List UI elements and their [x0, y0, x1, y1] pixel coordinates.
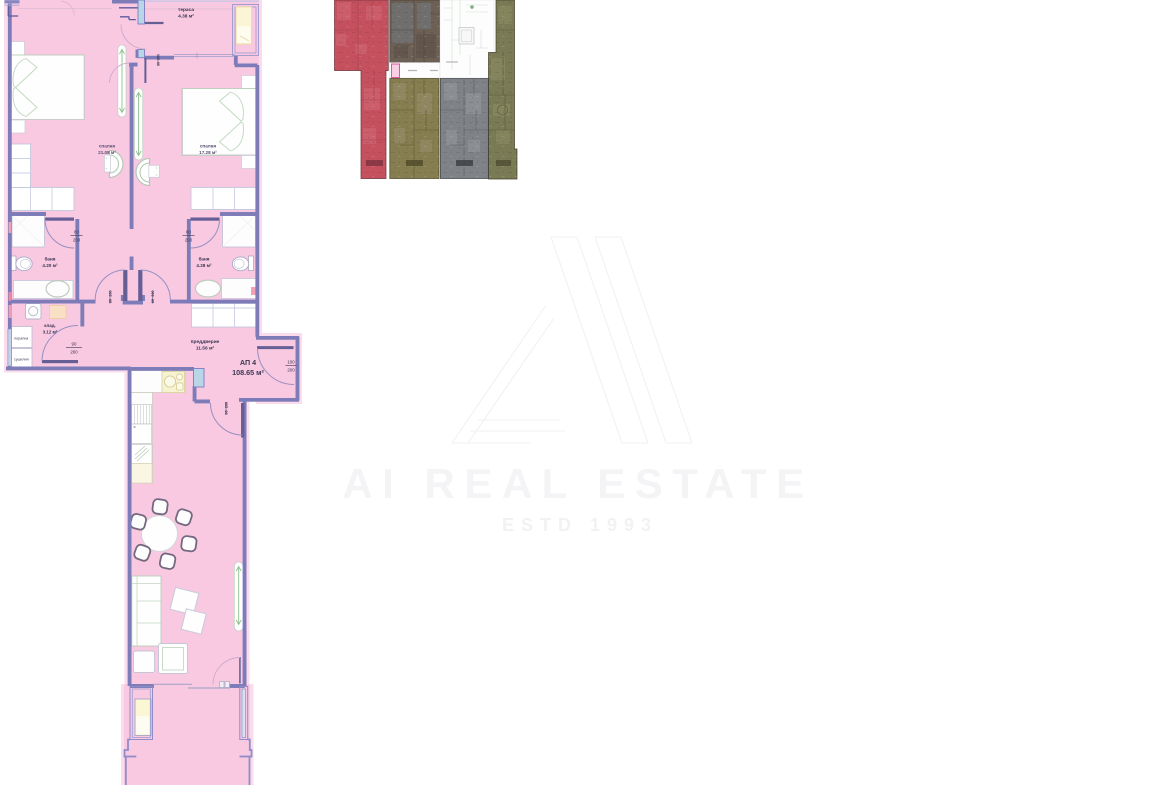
svg-text:108.65 м²: 108.65 м² — [232, 368, 264, 377]
svg-text:21.08 м²: 21.08 м² — [98, 150, 116, 155]
svg-text:200: 200 — [151, 290, 155, 296]
svg-text:80: 80 — [74, 230, 79, 235]
svg-text:баня: баня — [45, 256, 56, 262]
svg-text:АП 4: АП 4 — [240, 358, 256, 367]
svg-text:4.28 м²: 4.28 м² — [196, 263, 212, 268]
svg-text:преддверие: преддверие — [191, 340, 220, 345]
svg-text:перална: перална — [14, 337, 28, 341]
svg-text:200: 200 — [73, 238, 81, 243]
svg-text:4.20 м²: 4.20 м² — [42, 263, 58, 268]
svg-text:80: 80 — [109, 299, 113, 303]
svg-text:200: 200 — [185, 238, 193, 243]
svg-text:80: 80 — [151, 299, 155, 303]
svg-text:90: 90 — [157, 62, 161, 66]
svg-text:200: 200 — [225, 402, 229, 408]
svg-text:спалня: спалня — [200, 144, 217, 149]
svg-text:4.38 м²: 4.38 м² — [178, 14, 194, 20]
svg-text:100: 100 — [287, 360, 295, 365]
svg-text:200: 200 — [287, 368, 295, 373]
svg-text:ESTD 1993: ESTD 1993 — [502, 515, 658, 535]
svg-text:клад.: клад. — [44, 323, 56, 328]
svg-text:3.12 м²: 3.12 м² — [43, 330, 58, 335]
svg-text:спалня: спалня — [99, 144, 116, 149]
svg-text:80: 80 — [186, 230, 191, 235]
svg-text:17.28 м²: 17.28 м² — [199, 150, 217, 155]
svg-text:200: 200 — [70, 350, 78, 355]
svg-text:90: 90 — [72, 342, 77, 347]
svg-text:200: 200 — [157, 54, 161, 60]
svg-text:сушилня: сушилня — [14, 358, 29, 362]
svg-text:баня: баня — [199, 256, 210, 262]
svg-text:11.56 м²: 11.56 м² — [196, 346, 215, 352]
svg-text:200: 200 — [109, 290, 113, 296]
svg-text:тераса: тераса — [178, 8, 194, 13]
svg-text:AI REAL ESTATE: AI REAL ESTATE — [342, 460, 813, 507]
svg-text:90: 90 — [225, 410, 229, 414]
